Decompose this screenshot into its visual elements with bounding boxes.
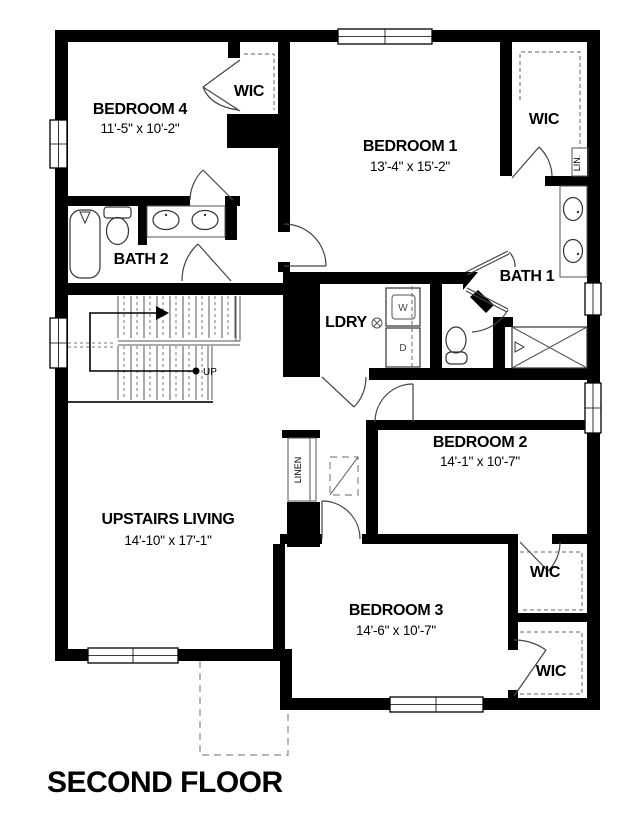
wall-jamb-bath1-lower	[470, 290, 494, 313]
stair-treads-lower-dashed	[124, 346, 202, 400]
wall-bedroom4-right-stub	[228, 42, 240, 58]
sink	[564, 198, 583, 221]
toilet-bath1	[446, 327, 467, 364]
wall-bedroom3-top-left	[280, 534, 322, 544]
wall-wic1-bottom	[545, 176, 600, 186]
bedroom4-label: BEDROOM 4	[93, 101, 188, 118]
wic-bedroom3-label: WIC	[536, 663, 567, 680]
dashed-area-below	[200, 661, 288, 755]
stair-landing-rail	[118, 341, 240, 345]
wall-hall-bottom	[369, 368, 600, 380]
window-left-bedroom4	[50, 120, 67, 168]
laundry-label: LDRY	[325, 314, 367, 331]
shower-valve	[515, 342, 524, 352]
bedroom2-dims: 14'-1" x 10'-7"	[440, 454, 520, 469]
bedroom4-dims: 11'-5" x 10'-2"	[100, 121, 179, 136]
shelf-wic-bedroom4	[244, 54, 274, 110]
wall-bath2-right	[225, 206, 237, 240]
wic-bedroom4-label: WIC	[234, 83, 265, 100]
window-left-stair	[50, 318, 67, 368]
wall-bath1-divider	[493, 325, 505, 368]
wall-jamb-bath1-upper	[463, 272, 478, 290]
sink	[153, 211, 179, 230]
wall-bedroom4-bottom-stub	[225, 196, 240, 206]
shower-bath1	[512, 327, 587, 368]
bedroom1-label: BEDROOM 1	[363, 138, 458, 155]
toilet-bath2	[104, 207, 131, 245]
laundry-fixtures	[372, 286, 420, 368]
bedroom3-label: BEDROOM 3	[349, 602, 444, 619]
vanity-bath1	[560, 186, 587, 277]
sink	[192, 211, 218, 230]
vanity-bath2	[147, 206, 225, 237]
wall-bedroom4-bottom	[55, 196, 190, 206]
shelf-wic-bedroom2	[520, 552, 582, 610]
wall-bedroom2-top-left	[366, 420, 413, 430]
floor-plan-drawing: BEDROOM 4 11'-5" x 10'-2" BEDROOM 1 13'-…	[0, 0, 639, 828]
window-top-bedroom1	[338, 29, 432, 44]
bedroom1-dims: 13'-4" x 15'-2"	[370, 159, 450, 174]
laundry-fan-symbol	[372, 318, 382, 328]
wall-bath2-bottom	[55, 283, 285, 295]
washer-label: W	[398, 303, 408, 314]
shelf-wic-bedroom1	[520, 52, 580, 148]
floor-plan-page: BEDROOM 4 11'-5" x 10'-2" BEDROOM 1 13'-…	[0, 0, 639, 828]
wall-wic4-chunk	[227, 114, 283, 148]
door-bath2	[182, 244, 231, 281]
wall-bedroom1-left-stub	[278, 262, 290, 272]
wall-bedroom3-top-right	[362, 534, 518, 544]
window-bottom-bedroom3	[390, 697, 483, 712]
stair-rail-dashed	[68, 343, 116, 347]
wall-top	[55, 30, 600, 42]
door-bedroom2	[375, 384, 413, 422]
wall-bedroom3-left	[273, 544, 285, 649]
bath1-label: BATH 1	[500, 268, 555, 285]
wall-bedroom1-bottom	[283, 272, 463, 284]
wic-bedroom2-label: WIC	[530, 564, 561, 581]
door-bedroom1	[284, 224, 326, 266]
staircase	[68, 296, 240, 402]
bathtub-faucet	[80, 212, 90, 223]
wall-bedroom2-left	[366, 420, 378, 534]
dryer-label: D	[399, 343, 406, 354]
window-right-bath1	[585, 283, 601, 315]
living-label: UPSTAIRS LIVING	[102, 511, 235, 528]
stair-treads-upper-dashed	[124, 296, 228, 338]
wall-wic-divider	[508, 613, 600, 622]
wall-laundry-left-chunk	[283, 283, 320, 377]
window-bottom-living	[88, 648, 178, 663]
bedroom2-label: BEDROOM 2	[433, 434, 528, 451]
stairs-up-label: UP	[203, 367, 217, 378]
plan-title: SECOND FLOOR	[47, 766, 284, 799]
wic-bedroom1-label: WIC	[529, 111, 560, 128]
wall-laundry-right	[430, 284, 442, 368]
sink	[564, 240, 583, 263]
door-laundry	[322, 377, 366, 407]
door-wic-bedroom1	[512, 147, 552, 178]
bath2-label: BATH 2	[114, 251, 169, 268]
lin-bath1-label: LIN.	[572, 155, 582, 172]
door-bedroom4	[190, 170, 233, 200]
living-dims: 14'-10" x 17'-1"	[124, 533, 212, 548]
wall-bath2-divider	[138, 206, 147, 245]
bedroom3-dims: 14'-6" x 10'-7"	[356, 623, 436, 638]
wall-bedroom1-left	[278, 42, 290, 232]
bathtub	[70, 210, 100, 278]
wall-wic1-left	[500, 42, 512, 176]
wall-wic-left-upper	[508, 542, 518, 650]
wall-linen-top	[282, 430, 320, 438]
window-right-bedroom2	[585, 383, 601, 433]
door-bedroom3	[322, 501, 360, 539]
wall-wic2-top-right	[552, 534, 600, 544]
linen-hall-label: LINEN	[293, 457, 303, 484]
wall-bedroom2-top-right	[413, 420, 600, 430]
